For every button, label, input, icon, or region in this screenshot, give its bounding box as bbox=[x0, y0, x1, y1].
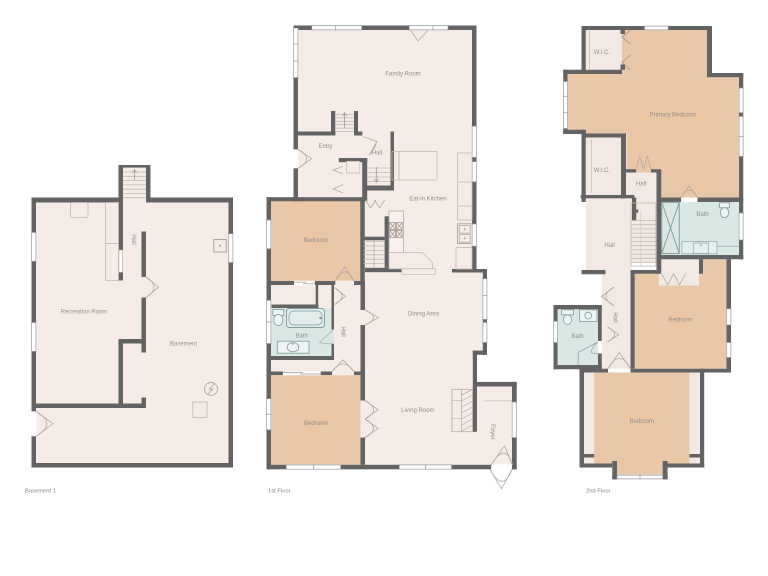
svg-text:Bedroom: Bedroom bbox=[668, 317, 692, 323]
svg-text:Living Room: Living Room bbox=[401, 408, 434, 414]
svg-text:Hall: Hall bbox=[372, 151, 382, 157]
svg-text:Basement: Basement bbox=[170, 341, 197, 347]
svg-text:Hall: Hall bbox=[604, 243, 614, 249]
svg-text:W.I.C.: W.I.C. bbox=[594, 168, 611, 174]
svg-text:Entry: Entry bbox=[318, 144, 332, 150]
svg-text:W.I.C.: W.I.C. bbox=[594, 50, 611, 56]
svg-text:Bedroom: Bedroom bbox=[304, 238, 328, 244]
svg-text:Eat-in Kitchen: Eat-in Kitchen bbox=[409, 196, 446, 202]
svg-text:Hall: Hall bbox=[612, 312, 618, 322]
svg-text:Hall: Hall bbox=[340, 326, 346, 336]
svg-text:Hall: Hall bbox=[636, 181, 646, 187]
svg-text:Bath: Bath bbox=[296, 334, 308, 340]
svg-text:1st Floor: 1st Floor bbox=[268, 489, 291, 495]
svg-text:Basement 1: Basement 1 bbox=[25, 489, 56, 495]
svg-text:Bath: Bath bbox=[696, 212, 708, 218]
svg-text:Bedroom: Bedroom bbox=[630, 419, 654, 425]
svg-text:Primary Bedroom: Primary Bedroom bbox=[650, 112, 697, 118]
svg-text:Foyer: Foyer bbox=[489, 424, 495, 439]
svg-text:Recreation Room: Recreation Room bbox=[61, 310, 108, 316]
svg-text:Dining Area: Dining Area bbox=[408, 311, 440, 317]
svg-text:Hall: Hall bbox=[130, 234, 136, 244]
svg-text:2nd Floor: 2nd Floor bbox=[586, 489, 611, 495]
svg-text:Bath: Bath bbox=[571, 334, 583, 340]
svg-text:Family Room: Family Room bbox=[385, 71, 420, 77]
svg-text:Bedroom: Bedroom bbox=[304, 421, 328, 427]
